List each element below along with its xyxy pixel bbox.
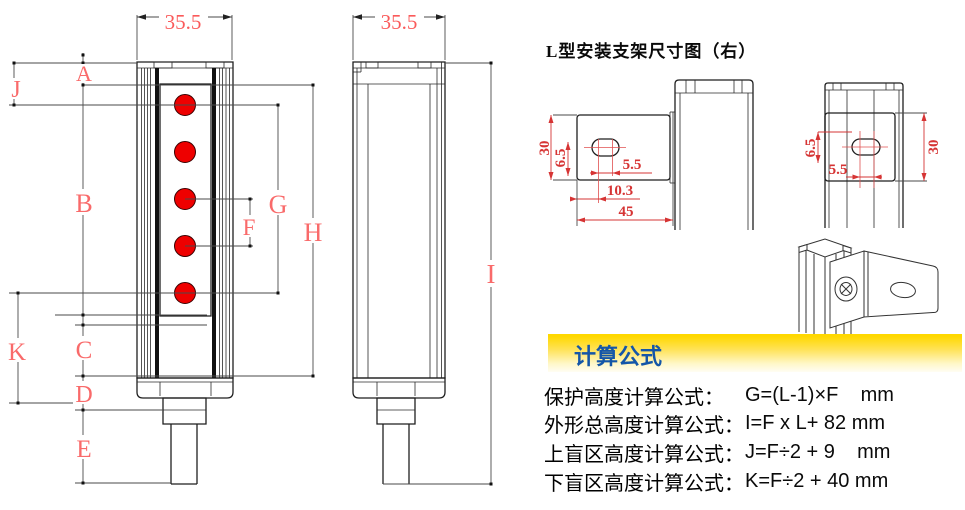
bracket-section-title: L型安装支架尺寸图（右）	[546, 37, 806, 62]
bracket-isometric-drawing	[799, 239, 938, 338]
formula-row-top-blind-zone: 上盲区高度计算公式： J=F÷2 + 9 mm	[544, 438, 964, 467]
dim-label-C: C	[76, 337, 93, 364]
formula-label: 外形总高度计算公式：	[544, 409, 745, 438]
formula-label: 保护高度计算公式：	[544, 381, 745, 410]
dim-label-F: F	[243, 215, 256, 240]
bracket-dim-45: 45	[619, 204, 634, 220]
formula-expression: K=F÷2 + 40 mm	[745, 470, 888, 493]
light-curtain-dimension-sheet: 35.5	[0, 0, 965, 510]
bracket-dim-10_3: 10.3	[607, 183, 633, 199]
formula-header-band: 计算公式	[548, 334, 962, 372]
bracket-dim-6_5: 6.5	[553, 149, 569, 168]
dim-label-K: K	[8, 339, 26, 366]
dim-label-I: I	[487, 259, 496, 289]
formula-expression: G=(L-1)×F mm	[745, 384, 894, 407]
bracket2-dim-5_5: 5.5	[829, 162, 848, 178]
front-view-drawing: 35.5	[7, 7, 323, 485]
bracket-dim-30: 30	[537, 141, 553, 156]
formula-header: 计算公式	[574, 339, 662, 371]
formula-list: 保护高度计算公式： G=(L-1)×F mm 外形总高度计算公式： I=F x …	[544, 381, 964, 495]
front-width-dim: 35.5	[165, 10, 202, 34]
dim-label-J: J	[11, 77, 20, 103]
formula-label: 上盲区高度计算公式：	[544, 438, 745, 467]
formula-row-protection-height: 保护高度计算公式： G=(L-1)×F mm	[544, 381, 964, 410]
bracket2-dim-6_5: 6.5	[803, 139, 819, 158]
formula-expression: I=F x L+ 82 mm	[745, 412, 885, 435]
formula-label: 下盲区高度计算公式：	[544, 467, 745, 496]
dim-label-E: E	[76, 436, 91, 463]
bracket-front-drawing: 6.5 5.5 30	[803, 83, 942, 228]
formula-expression: J=F÷2 + 9 mm	[745, 441, 890, 464]
formula-row-bottom-blind-zone: 下盲区高度计算公式： K=F÷2 + 40 mm	[544, 467, 964, 496]
bracket-dim-5_5: 5.5	[623, 157, 642, 173]
dim-label-A: A	[76, 61, 92, 86]
bracket2-dim-30: 30	[926, 140, 942, 155]
side-view-drawing: 35.5 I	[353, 7, 498, 486]
formula-row-total-height: 外形总高度计算公式： I=F x L+ 82 mm	[544, 410, 964, 439]
side-width-dim: 35.5	[381, 10, 418, 34]
bracket-side-drawing: 30 6.5 5.5 10.3 45	[537, 80, 753, 230]
dim-label-B: B	[75, 189, 92, 218]
dim-label-H: H	[304, 218, 323, 247]
dim-label-G: G	[269, 190, 288, 219]
dim-label-D: D	[75, 382, 92, 408]
